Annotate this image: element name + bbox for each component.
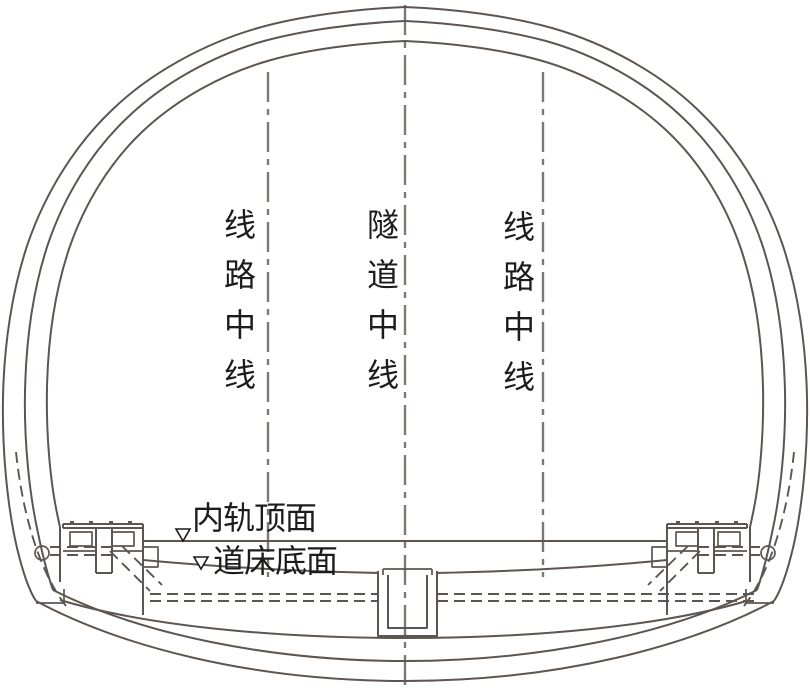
- right-bed-step: [652, 547, 667, 567]
- drain-lip: [383, 569, 432, 575]
- right-cover-bolt-3: [715, 521, 719, 525]
- right-trough-cell-1: [676, 532, 698, 546]
- left-cover-bolt-2: [89, 521, 93, 525]
- rail-top-level-marker: [176, 529, 190, 541]
- tunnel-drawing: [0, 0, 810, 689]
- right-trough-pillar: [698, 528, 714, 573]
- left-wall-hidden-diagonal: [16, 452, 66, 606]
- lining-middle-right: [405, 21, 785, 590]
- left-trough-cell-1: [70, 532, 92, 546]
- left-trough-cell-2: [112, 532, 134, 546]
- label-bed-bottom-surface: 道床底面: [213, 545, 337, 577]
- label-left-line-centerline: 线路中线: [222, 208, 254, 408]
- tunnel-cross-section-diagram: 线路中线 隧道中线 线路中线 内轨顶面 道床底面: [0, 0, 810, 689]
- right-trough-cell-2: [718, 532, 740, 546]
- right-cover-bolt-1: [676, 521, 680, 525]
- lining-outer-right: [405, 7, 807, 601]
- right-cover-bolt-4: [734, 521, 738, 525]
- right-cover-bolt-2: [695, 521, 699, 525]
- lining-inner-right: [405, 41, 763, 527]
- right-wall-hidden-diagonal: [744, 452, 794, 606]
- bed-bottom-level-marker: [194, 557, 208, 569]
- drain-inner-box: [388, 575, 427, 628]
- left-trough-hidden-diagonals: [110, 546, 162, 591]
- central-drain: [378, 569, 437, 636]
- left-cover-bolt-4: [128, 521, 132, 525]
- label-rail-top-surface: 内轨顶面: [192, 502, 316, 534]
- drain-outer-box: [378, 571, 437, 636]
- left-cover-bolt-3: [109, 521, 113, 525]
- left-bed-step: [143, 547, 158, 567]
- left-cover-bolt-1: [70, 521, 74, 525]
- right-trough-hidden-diagonals: [648, 546, 700, 591]
- left-trough-pillar: [96, 528, 112, 573]
- label-tunnel-centerline: 隧道中线: [365, 208, 397, 408]
- label-right-line-centerline: 线路中线: [501, 210, 533, 410]
